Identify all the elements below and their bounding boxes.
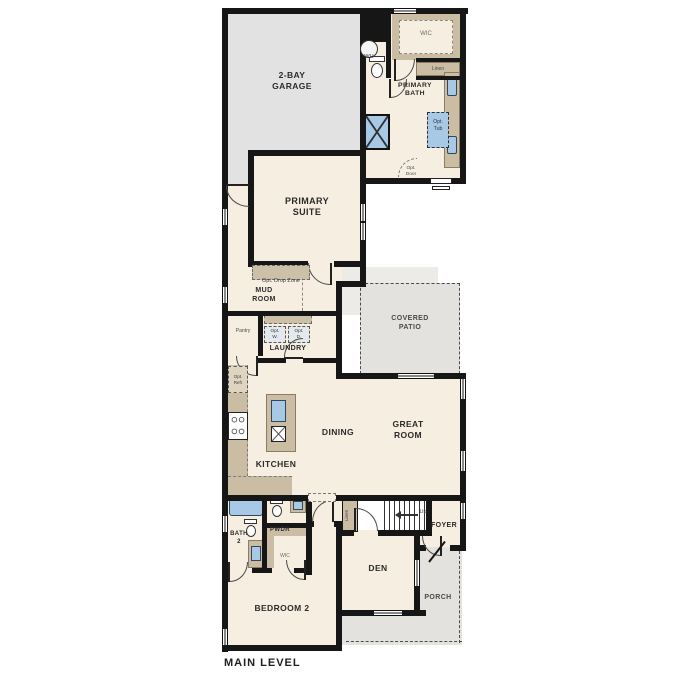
great-room-label: GREAT ROOM xyxy=(380,419,436,440)
window xyxy=(222,516,228,532)
wall xyxy=(334,261,366,267)
primary-toilet-bowl xyxy=(371,63,383,78)
bath2-label: BATH 2 xyxy=(226,531,252,546)
window xyxy=(222,629,228,645)
bedroom2-door xyxy=(312,500,334,522)
wall xyxy=(416,76,462,80)
linen-upper-label: Linen xyxy=(416,66,460,72)
wall-mass xyxy=(360,12,386,42)
stairs-linen-label: Linen xyxy=(344,501,356,529)
window xyxy=(222,287,228,303)
window xyxy=(374,610,402,616)
window xyxy=(460,503,466,519)
bath2-door xyxy=(228,562,248,582)
dining-label: DINING xyxy=(310,427,366,438)
window xyxy=(460,451,466,471)
wic2-label: WIC xyxy=(272,553,298,559)
wall xyxy=(386,14,391,78)
opt-tub-label: Opt. Tub xyxy=(427,119,449,132)
kitchen-label: KITCHEN xyxy=(240,459,312,470)
powder-sink xyxy=(293,501,303,510)
pantry-label: Pantry xyxy=(228,328,258,334)
garage-strip-floor xyxy=(226,150,248,186)
wall xyxy=(248,150,254,267)
bath2-sink xyxy=(251,546,261,561)
primary-bath-label: PRIMARY BATH xyxy=(388,82,442,99)
shower-x-icon xyxy=(366,116,388,148)
wall xyxy=(336,610,376,616)
wall xyxy=(336,281,342,379)
window xyxy=(394,8,416,14)
garage-label: 2-BAY GARAGE xyxy=(252,70,332,91)
wall xyxy=(222,645,342,651)
wall xyxy=(258,358,286,363)
window xyxy=(360,204,366,221)
patio-slider xyxy=(398,373,434,379)
wall xyxy=(228,311,338,316)
wall xyxy=(402,610,426,616)
opt-refr-label: Opt. Refr xyxy=(234,374,243,385)
mud-room-label: MUD ROOM xyxy=(238,287,290,305)
primary-shower xyxy=(364,114,390,150)
bedroom2-label: BEDROOM 2 xyxy=(234,603,330,614)
powder-toilet-bowl xyxy=(272,505,282,517)
opt-drop-zone-label: Opt. Drop Zone xyxy=(262,278,300,284)
opt-exterior-door-landing xyxy=(432,186,450,190)
opt-washer: Opt. W. xyxy=(264,326,286,343)
stairs-up-label: Up xyxy=(414,509,432,516)
opt-exterior-door-step xyxy=(430,178,452,184)
den-door xyxy=(354,508,378,531)
laundry-label: LAUNDRY xyxy=(258,345,318,354)
opt-door-label: Opt. Door xyxy=(398,166,424,178)
porch-label: PORCH xyxy=(414,594,462,603)
island-dishwasher xyxy=(271,426,286,442)
wall xyxy=(450,545,466,551)
wall xyxy=(336,373,398,379)
covered-patio-label: COVERED PATIO xyxy=(368,315,452,333)
window xyxy=(360,223,366,240)
primary-suite-door xyxy=(308,263,332,285)
garage-entry-door xyxy=(226,184,249,207)
bath2-tub xyxy=(229,499,263,516)
primary-suite-label: PRIMARY SUITE xyxy=(262,196,352,219)
opt-drop-zone: Opt. Drop Zone xyxy=(252,265,310,280)
foyer-label: FOYER xyxy=(424,522,464,531)
wall xyxy=(248,150,366,156)
bath2-toilet-tank xyxy=(244,519,257,524)
plan-title: MAIN LEVEL xyxy=(224,657,364,671)
wall xyxy=(303,358,342,363)
dishwasher-x-icon xyxy=(272,427,285,441)
den-label: DEN xyxy=(354,563,402,574)
primary-sink-1 xyxy=(447,78,457,96)
water-heater-label: WH xyxy=(364,54,373,60)
wic2-door xyxy=(286,560,306,580)
wall xyxy=(336,521,342,651)
window xyxy=(414,560,420,586)
powder-label: PWDR xyxy=(262,527,298,535)
range xyxy=(228,412,248,440)
wic2-shelf-left xyxy=(266,536,274,568)
opt-refrigerator: Opt. Refr xyxy=(228,366,248,393)
kitchen-counter-bottom xyxy=(228,476,292,496)
water-heater: WH xyxy=(360,40,378,58)
wall xyxy=(460,8,466,184)
wall xyxy=(252,568,272,573)
window xyxy=(460,379,466,399)
porch-dashed-edge-bottom xyxy=(346,641,462,643)
burners-icon xyxy=(229,413,247,439)
wall xyxy=(336,530,354,536)
wall xyxy=(416,58,462,62)
floor-plan: WH Opt. Drop Zone Opt. Cabs Opt. W. Opt.… xyxy=(0,0,687,687)
opt-cabs: Opt. Cabs xyxy=(264,315,312,324)
window xyxy=(222,209,228,225)
wall xyxy=(222,8,468,14)
wic-primary-label: WIC xyxy=(400,31,452,39)
cased-opening xyxy=(308,493,336,502)
primary-wic-door xyxy=(394,59,415,81)
island-sink xyxy=(271,400,286,422)
opt-washer-label: Opt. W. xyxy=(270,329,279,341)
